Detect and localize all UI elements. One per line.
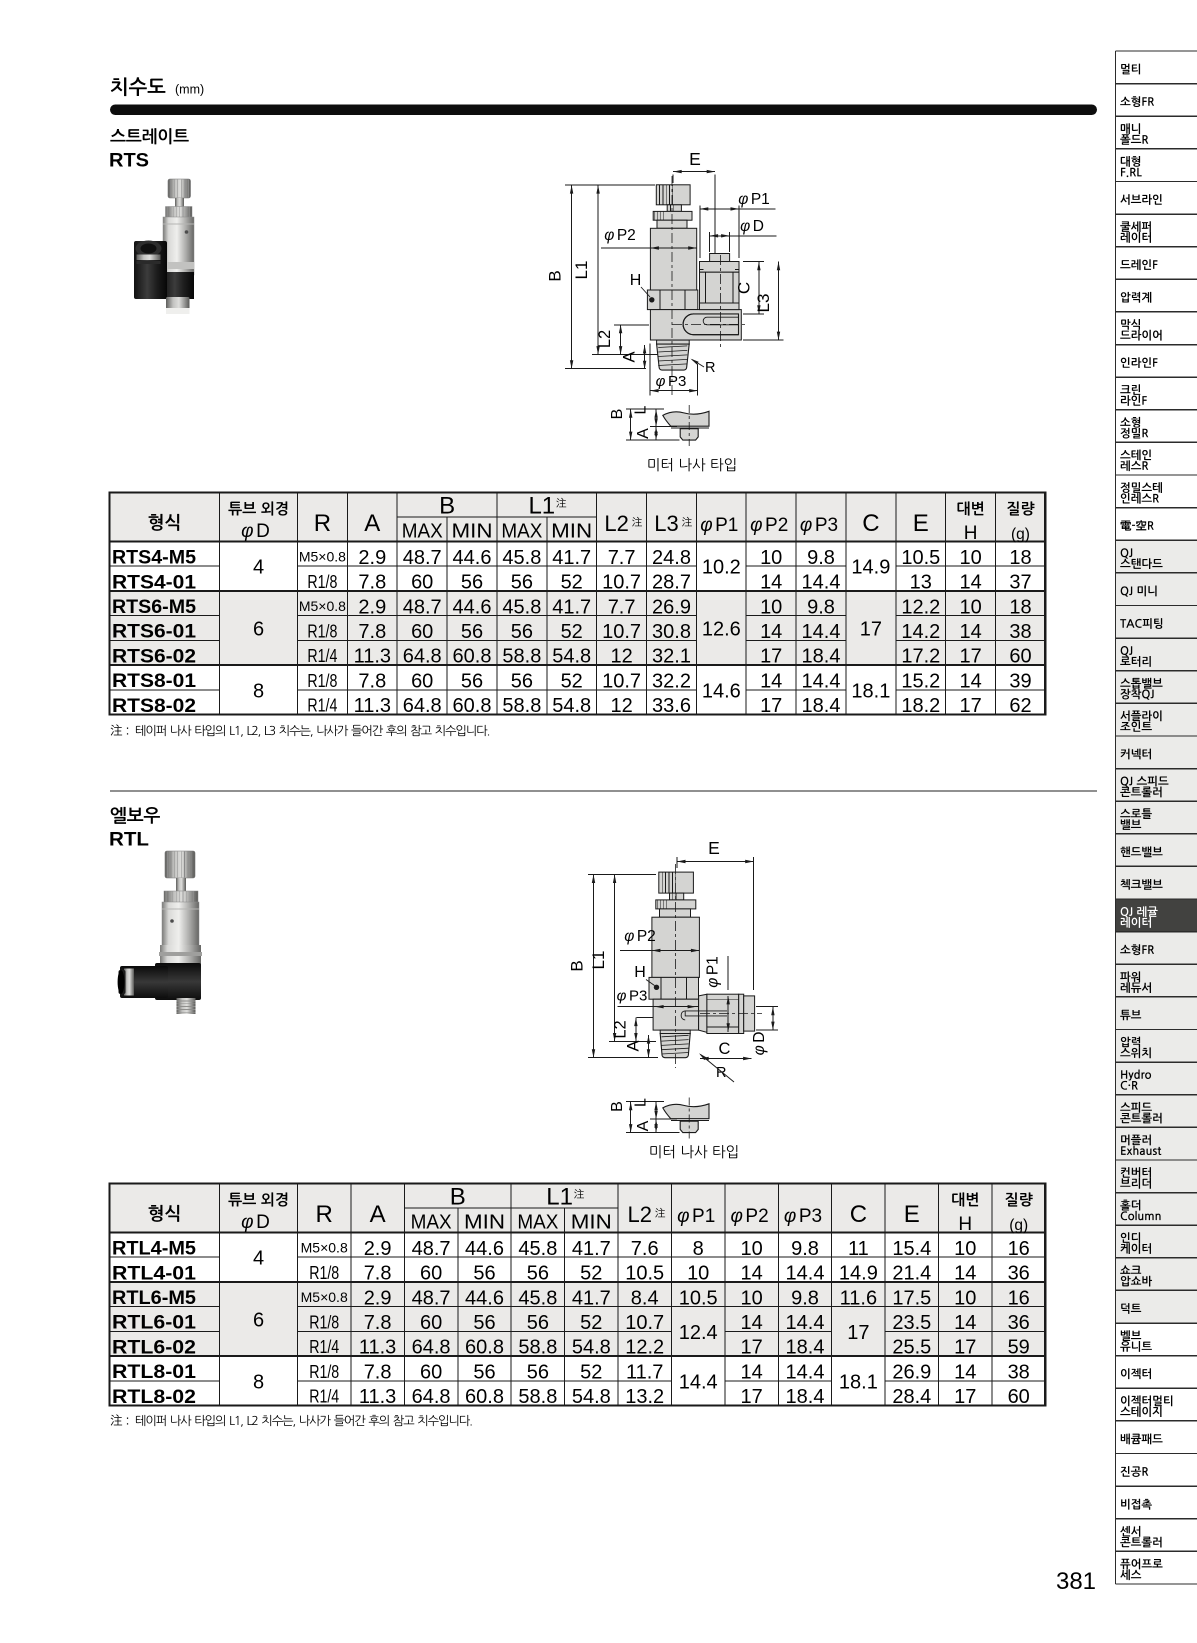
svg-text:41.7: 41.7 bbox=[572, 1287, 611, 1309]
svg-text:2.9: 2.9 bbox=[364, 1238, 392, 1260]
svg-text:44.6: 44.6 bbox=[465, 1287, 504, 1309]
svg-text:56: 56 bbox=[461, 670, 483, 692]
svg-text:12: 12 bbox=[610, 646, 632, 668]
svg-text:9.8: 9.8 bbox=[791, 1287, 819, 1309]
svg-text:17: 17 bbox=[954, 1386, 976, 1408]
svg-text:R: R bbox=[316, 1201, 333, 1228]
svg-text:7.8: 7.8 bbox=[364, 1263, 392, 1285]
svg-text:R1/4: R1/4 bbox=[309, 1386, 339, 1407]
svg-text:8: 8 bbox=[693, 1238, 704, 1260]
svg-text:18: 18 bbox=[1009, 547, 1031, 569]
svg-text:18.1: 18.1 bbox=[839, 1371, 878, 1393]
svg-text:φP3: φP3 bbox=[800, 515, 838, 536]
svg-text:59: 59 bbox=[1008, 1337, 1030, 1359]
svg-text:RTS8-02: RTS8-02 bbox=[112, 696, 196, 717]
svg-text:RTS6-M5: RTS6-M5 bbox=[112, 597, 196, 618]
svg-text:52: 52 bbox=[580, 1312, 602, 1334]
svg-text:18.1: 18.1 bbox=[851, 680, 890, 702]
svg-text:8.4: 8.4 bbox=[631, 1287, 659, 1309]
svg-text:12.4: 12.4 bbox=[679, 1322, 718, 1344]
svg-text:58.8: 58.8 bbox=[518, 1337, 557, 1359]
svg-text:14.2: 14.2 bbox=[901, 621, 940, 643]
svg-text:381: 381 bbox=[1056, 1568, 1096, 1595]
svg-text:14.9: 14.9 bbox=[839, 1263, 878, 1285]
svg-text:56: 56 bbox=[527, 1361, 549, 1383]
svg-text:10.7: 10.7 bbox=[625, 1312, 664, 1334]
svg-text:MIN: MIN bbox=[464, 1212, 505, 1234]
svg-text:56: 56 bbox=[473, 1361, 495, 1383]
svg-text:45.8: 45.8 bbox=[502, 547, 541, 569]
svg-text:M5×0.8: M5×0.8 bbox=[301, 1289, 348, 1305]
svg-text:RTL6-02: RTL6-02 bbox=[112, 1337, 196, 1358]
svg-text:7.7: 7.7 bbox=[608, 547, 636, 569]
svg-text:14: 14 bbox=[740, 1361, 762, 1383]
svg-text:60.8: 60.8 bbox=[465, 1337, 504, 1359]
svg-text:48.7: 48.7 bbox=[403, 596, 442, 618]
svg-text:4: 4 bbox=[253, 1248, 264, 1270]
svg-text:56: 56 bbox=[527, 1263, 549, 1285]
svg-text:14: 14 bbox=[954, 1361, 976, 1383]
svg-text:R: R bbox=[314, 510, 331, 537]
svg-text:L3: L3 bbox=[754, 294, 773, 313]
svg-text:B: B bbox=[450, 1184, 466, 1211]
svg-text:52: 52 bbox=[561, 670, 583, 692]
svg-text:2.9: 2.9 bbox=[358, 596, 386, 618]
svg-text:MIN: MIN bbox=[452, 521, 493, 543]
svg-text:64.8: 64.8 bbox=[412, 1386, 451, 1408]
svg-text:φD: φD bbox=[241, 1212, 270, 1233]
svg-text:L2: L2 bbox=[612, 1020, 630, 1038]
svg-text:36: 36 bbox=[1008, 1312, 1030, 1334]
svg-text:2.9: 2.9 bbox=[358, 547, 386, 569]
svg-text:45.8: 45.8 bbox=[518, 1287, 557, 1309]
svg-text:A: A bbox=[621, 351, 639, 362]
svg-text:RTL8-01: RTL8-01 bbox=[112, 1362, 196, 1383]
svg-text:10.7: 10.7 bbox=[602, 621, 641, 643]
svg-text:60: 60 bbox=[411, 621, 433, 643]
svg-text:12.2: 12.2 bbox=[901, 596, 940, 618]
svg-text:L2: L2 bbox=[604, 511, 628, 536]
svg-text:14.4: 14.4 bbox=[802, 572, 841, 594]
svg-text:14.4: 14.4 bbox=[786, 1361, 825, 1383]
svg-text:11.3: 11.3 bbox=[359, 1337, 396, 1359]
svg-text:RTL6-M5: RTL6-M5 bbox=[112, 1288, 196, 1309]
svg-text:φP2: φP2 bbox=[731, 1206, 769, 1227]
svg-text:9.8: 9.8 bbox=[807, 547, 835, 569]
svg-text:17: 17 bbox=[760, 695, 782, 717]
svg-text:7.8: 7.8 bbox=[358, 621, 386, 643]
svg-text:10.5: 10.5 bbox=[679, 1287, 718, 1309]
svg-text:10.5: 10.5 bbox=[901, 547, 940, 569]
svg-text:10: 10 bbox=[954, 1238, 976, 1260]
svg-text:18: 18 bbox=[1009, 596, 1031, 618]
svg-text:56: 56 bbox=[511, 572, 533, 594]
svg-text:A: A bbox=[635, 1120, 652, 1131]
svg-text:45.8: 45.8 bbox=[518, 1238, 557, 1260]
svg-text:A: A bbox=[635, 428, 652, 439]
svg-text:56: 56 bbox=[473, 1263, 495, 1285]
svg-text:φP1: φP1 bbox=[705, 956, 722, 988]
svg-text:14.9: 14.9 bbox=[851, 557, 890, 579]
svg-text:56: 56 bbox=[511, 670, 533, 692]
svg-text:39: 39 bbox=[1009, 670, 1031, 692]
svg-text:14: 14 bbox=[954, 1263, 976, 1285]
svg-text:B: B bbox=[609, 409, 626, 420]
svg-text:7.7: 7.7 bbox=[608, 596, 636, 618]
svg-text:23.5: 23.5 bbox=[892, 1312, 931, 1334]
svg-text:16: 16 bbox=[1008, 1287, 1030, 1309]
svg-text:60: 60 bbox=[411, 572, 433, 594]
svg-text:L1: L1 bbox=[589, 951, 608, 970]
svg-text:10: 10 bbox=[954, 1287, 976, 1309]
svg-text:φP3: φP3 bbox=[617, 988, 648, 1005]
svg-text:56: 56 bbox=[461, 572, 483, 594]
svg-text:64.8: 64.8 bbox=[412, 1337, 451, 1359]
svg-text:36: 36 bbox=[1008, 1263, 1030, 1285]
svg-text:φD: φD bbox=[740, 218, 764, 235]
svg-text:(mm): (mm) bbox=[175, 83, 204, 97]
svg-text:H: H bbox=[958, 1214, 972, 1235]
svg-text:φP2: φP2 bbox=[750, 515, 788, 536]
svg-text:MIN: MIN bbox=[571, 1212, 612, 1234]
svg-text:11.7: 11.7 bbox=[626, 1361, 663, 1383]
svg-text:60: 60 bbox=[1009, 646, 1031, 668]
svg-text:RTS4-M5: RTS4-M5 bbox=[112, 548, 196, 569]
svg-text:64.8: 64.8 bbox=[403, 695, 442, 717]
svg-text:L3: L3 bbox=[654, 511, 678, 536]
svg-text:17: 17 bbox=[760, 646, 782, 668]
svg-text:24.8: 24.8 bbox=[652, 547, 691, 569]
svg-text:φD: φD bbox=[751, 1032, 768, 1056]
svg-text:φP2: φP2 bbox=[624, 928, 656, 945]
svg-text:φP2: φP2 bbox=[604, 227, 636, 244]
svg-text:11.3: 11.3 bbox=[354, 646, 391, 668]
svg-text:52: 52 bbox=[580, 1361, 602, 1383]
svg-text:26.9: 26.9 bbox=[652, 596, 691, 618]
svg-text:E: E bbox=[708, 838, 720, 858]
svg-text:(g): (g) bbox=[1009, 1217, 1028, 1234]
svg-text:MAX: MAX bbox=[517, 1212, 558, 1234]
svg-text:26.9: 26.9 bbox=[892, 1361, 931, 1383]
svg-text:17: 17 bbox=[740, 1337, 762, 1359]
svg-text:25.5: 25.5 bbox=[892, 1337, 931, 1359]
svg-text:B: B bbox=[568, 960, 587, 971]
svg-text:7.8: 7.8 bbox=[364, 1312, 392, 1334]
svg-text:R: R bbox=[705, 360, 715, 376]
svg-text:52: 52 bbox=[580, 1263, 602, 1285]
svg-text:R1/8: R1/8 bbox=[307, 670, 337, 691]
svg-text:60.8: 60.8 bbox=[453, 695, 492, 717]
svg-text:MAX: MAX bbox=[402, 521, 443, 543]
svg-text:11: 11 bbox=[848, 1238, 869, 1260]
svg-text:14: 14 bbox=[954, 1312, 976, 1334]
svg-text:13.2: 13.2 bbox=[625, 1386, 664, 1408]
svg-text:54.8: 54.8 bbox=[552, 646, 591, 668]
svg-text:33.6: 33.6 bbox=[652, 695, 691, 717]
svg-text:14: 14 bbox=[760, 670, 782, 692]
svg-text:RTS: RTS bbox=[109, 150, 149, 172]
svg-text:RTS8-01: RTS8-01 bbox=[112, 671, 196, 692]
svg-text:17: 17 bbox=[959, 646, 981, 668]
svg-text:9.8: 9.8 bbox=[807, 596, 835, 618]
svg-text:C: C bbox=[719, 1040, 731, 1058]
svg-text:14.4: 14.4 bbox=[679, 1371, 718, 1393]
svg-text:7.8: 7.8 bbox=[358, 670, 386, 692]
svg-text:17: 17 bbox=[860, 619, 882, 641]
svg-text:38: 38 bbox=[1009, 621, 1031, 643]
svg-text:41.7: 41.7 bbox=[552, 596, 591, 618]
svg-text:H: H bbox=[964, 523, 978, 544]
svg-text:12: 12 bbox=[610, 695, 632, 717]
svg-text:RTS6-01: RTS6-01 bbox=[112, 622, 196, 643]
svg-text:60: 60 bbox=[411, 670, 433, 692]
svg-text:12.6: 12.6 bbox=[702, 619, 741, 641]
svg-text:14: 14 bbox=[740, 1312, 762, 1334]
svg-text:R1/8: R1/8 bbox=[309, 1262, 339, 1283]
svg-text:B: B bbox=[439, 493, 455, 520]
svg-text:B: B bbox=[546, 270, 565, 281]
svg-text:45.8: 45.8 bbox=[502, 596, 541, 618]
svg-text:14.4: 14.4 bbox=[802, 621, 841, 643]
svg-text:R1/8: R1/8 bbox=[309, 1312, 339, 1333]
svg-text:60.8: 60.8 bbox=[453, 646, 492, 668]
svg-text:8: 8 bbox=[253, 680, 264, 702]
svg-text:18.4: 18.4 bbox=[802, 646, 841, 668]
svg-text:54.8: 54.8 bbox=[572, 1386, 611, 1408]
svg-text:A: A bbox=[364, 510, 380, 537]
svg-text:18.4: 18.4 bbox=[786, 1337, 825, 1359]
svg-text:10: 10 bbox=[959, 596, 981, 618]
svg-text:60: 60 bbox=[420, 1361, 442, 1383]
svg-text:60: 60 bbox=[420, 1263, 442, 1285]
svg-text:17.5: 17.5 bbox=[892, 1287, 931, 1309]
svg-text:L2: L2 bbox=[596, 330, 614, 348]
svg-text:φP1: φP1 bbox=[677, 1206, 715, 1227]
svg-text:H: H bbox=[634, 964, 646, 981]
svg-text::: : bbox=[126, 1413, 130, 1428]
svg-text:38: 38 bbox=[1008, 1361, 1030, 1383]
svg-text:MIN: MIN bbox=[551, 521, 592, 543]
svg-text:φD: φD bbox=[241, 521, 270, 542]
svg-text:11.6: 11.6 bbox=[840, 1287, 877, 1309]
svg-text:RTL4-01: RTL4-01 bbox=[112, 1263, 196, 1284]
svg-text:RTL4-M5: RTL4-M5 bbox=[112, 1239, 196, 1260]
svg-text:A: A bbox=[370, 1201, 386, 1228]
svg-text:54.8: 54.8 bbox=[552, 695, 591, 717]
svg-text:7.6: 7.6 bbox=[631, 1238, 659, 1260]
svg-text:18.4: 18.4 bbox=[786, 1386, 825, 1408]
svg-text:M5×0.8: M5×0.8 bbox=[301, 1240, 348, 1256]
svg-text:15.2: 15.2 bbox=[901, 670, 940, 692]
svg-text:58.8: 58.8 bbox=[518, 1386, 557, 1408]
svg-text:56: 56 bbox=[511, 621, 533, 643]
svg-text:14.4: 14.4 bbox=[802, 670, 841, 692]
svg-text:φP1: φP1 bbox=[700, 515, 738, 536]
svg-text:MAX: MAX bbox=[501, 521, 542, 543]
svg-text:7.8: 7.8 bbox=[364, 1361, 392, 1383]
svg-text:48.7: 48.7 bbox=[403, 547, 442, 569]
svg-text:18.4: 18.4 bbox=[802, 695, 841, 717]
svg-text:φP1: φP1 bbox=[738, 191, 770, 208]
svg-text:10: 10 bbox=[959, 547, 981, 569]
svg-text:28.4: 28.4 bbox=[892, 1386, 931, 1408]
svg-text:10: 10 bbox=[687, 1263, 709, 1285]
svg-text:14: 14 bbox=[959, 572, 981, 594]
svg-text:58.8: 58.8 bbox=[502, 646, 541, 668]
svg-text:L: L bbox=[633, 1098, 650, 1107]
svg-text:10.2: 10.2 bbox=[702, 557, 741, 579]
svg-text:R1/8: R1/8 bbox=[309, 1361, 339, 1382]
svg-text:E: E bbox=[904, 1201, 920, 1228]
svg-text:17: 17 bbox=[847, 1322, 869, 1344]
svg-text:14.6: 14.6 bbox=[702, 680, 741, 702]
svg-text:41.7: 41.7 bbox=[552, 547, 591, 569]
svg-text:62: 62 bbox=[1009, 695, 1031, 717]
svg-text:6: 6 bbox=[253, 1310, 264, 1332]
svg-text:28.7: 28.7 bbox=[652, 572, 691, 594]
svg-text:17: 17 bbox=[740, 1386, 762, 1408]
svg-text:13: 13 bbox=[910, 572, 932, 594]
svg-text:9.8: 9.8 bbox=[791, 1238, 819, 1260]
svg-text:14: 14 bbox=[959, 621, 981, 643]
svg-text:L: L bbox=[633, 405, 650, 414]
svg-text:7.8: 7.8 bbox=[358, 572, 386, 594]
svg-text:R: R bbox=[716, 1065, 726, 1081]
svg-text:10.7: 10.7 bbox=[602, 670, 641, 692]
svg-text:60: 60 bbox=[420, 1312, 442, 1334]
svg-text:52: 52 bbox=[561, 572, 583, 594]
svg-text:14: 14 bbox=[959, 670, 981, 692]
svg-text:60.8: 60.8 bbox=[465, 1386, 504, 1408]
svg-text:8: 8 bbox=[253, 1371, 264, 1393]
svg-text:60: 60 bbox=[1008, 1386, 1030, 1408]
svg-text:C: C bbox=[850, 1201, 867, 1228]
svg-text:2.9: 2.9 bbox=[364, 1287, 392, 1309]
svg-text:10: 10 bbox=[740, 1238, 762, 1260]
svg-text:14.4: 14.4 bbox=[786, 1312, 825, 1334]
svg-text:MAX: MAX bbox=[411, 1212, 452, 1234]
svg-text:10: 10 bbox=[760, 547, 782, 569]
svg-text:48.7: 48.7 bbox=[412, 1238, 451, 1260]
svg-text:RTS6-02: RTS6-02 bbox=[112, 646, 196, 667]
svg-text:52: 52 bbox=[561, 621, 583, 643]
svg-text:17: 17 bbox=[959, 695, 981, 717]
svg-text:54.8: 54.8 bbox=[572, 1337, 611, 1359]
svg-text:14: 14 bbox=[740, 1263, 762, 1285]
svg-text:R1/8: R1/8 bbox=[307, 621, 337, 642]
svg-text:44.6: 44.6 bbox=[465, 1238, 504, 1260]
svg-text:48.7: 48.7 bbox=[412, 1287, 451, 1309]
svg-text:RTL: RTL bbox=[109, 829, 149, 851]
svg-text:R1/4: R1/4 bbox=[309, 1336, 339, 1357]
svg-text:11.3: 11.3 bbox=[354, 695, 391, 717]
svg-text:11.3: 11.3 bbox=[359, 1386, 396, 1408]
svg-text:φP3: φP3 bbox=[784, 1206, 822, 1227]
svg-text:B: B bbox=[609, 1101, 626, 1112]
svg-text:L2: L2 bbox=[627, 1202, 651, 1227]
svg-text:15.4: 15.4 bbox=[892, 1238, 931, 1260]
svg-text:H: H bbox=[630, 272, 642, 289]
svg-text:L1: L1 bbox=[546, 1184, 573, 1211]
svg-text:RTS4-01: RTS4-01 bbox=[112, 572, 196, 593]
svg-text:10.7: 10.7 bbox=[602, 572, 641, 594]
svg-text:RTL8-02: RTL8-02 bbox=[112, 1387, 196, 1408]
svg-text:18.2: 18.2 bbox=[901, 695, 940, 717]
svg-text:32.1: 32.1 bbox=[652, 646, 691, 668]
svg-text:C: C bbox=[735, 282, 754, 294]
svg-text:30.8: 30.8 bbox=[652, 621, 691, 643]
svg-text:C: C bbox=[862, 510, 879, 537]
svg-text:L1: L1 bbox=[572, 261, 591, 280]
svg-text:10.5: 10.5 bbox=[625, 1263, 664, 1285]
svg-text:14.4: 14.4 bbox=[786, 1263, 825, 1285]
svg-text:R1/4: R1/4 bbox=[307, 645, 337, 666]
svg-text:12.2: 12.2 bbox=[625, 1337, 664, 1359]
svg-text:4: 4 bbox=[253, 557, 264, 579]
svg-text:41.7: 41.7 bbox=[572, 1238, 611, 1260]
svg-text:64.8: 64.8 bbox=[403, 646, 442, 668]
svg-text:E: E bbox=[913, 510, 929, 537]
svg-text:17: 17 bbox=[954, 1337, 976, 1359]
svg-text:R1/8: R1/8 bbox=[307, 571, 337, 592]
svg-text:10: 10 bbox=[740, 1287, 762, 1309]
svg-text:A: A bbox=[625, 1040, 643, 1051]
svg-text:17.2: 17.2 bbox=[901, 646, 940, 668]
svg-text:21.4: 21.4 bbox=[892, 1263, 931, 1285]
svg-text:56: 56 bbox=[473, 1312, 495, 1334]
svg-text:10: 10 bbox=[760, 596, 782, 618]
svg-text:14: 14 bbox=[760, 621, 782, 643]
svg-text:32.2: 32.2 bbox=[652, 670, 691, 692]
svg-text:L1: L1 bbox=[528, 493, 555, 520]
svg-text:44.6: 44.6 bbox=[453, 547, 492, 569]
svg-text:M5×0.8: M5×0.8 bbox=[299, 549, 346, 565]
svg-text::: : bbox=[126, 723, 130, 738]
svg-text:14: 14 bbox=[760, 572, 782, 594]
svg-text:E: E bbox=[689, 149, 701, 169]
svg-text:58.8: 58.8 bbox=[502, 695, 541, 717]
svg-text:6: 6 bbox=[253, 619, 264, 641]
svg-text:56: 56 bbox=[527, 1312, 549, 1334]
svg-text:RTL6-01: RTL6-01 bbox=[112, 1313, 196, 1334]
svg-text:φP3: φP3 bbox=[656, 373, 687, 390]
svg-text:37: 37 bbox=[1009, 572, 1031, 594]
svg-text:R1/4: R1/4 bbox=[307, 695, 337, 716]
svg-text:16: 16 bbox=[1008, 1238, 1030, 1260]
svg-text:(g): (g) bbox=[1011, 526, 1030, 543]
svg-text:M5×0.8: M5×0.8 bbox=[299, 598, 346, 614]
svg-text:56: 56 bbox=[461, 621, 483, 643]
svg-text:44.6: 44.6 bbox=[453, 596, 492, 618]
